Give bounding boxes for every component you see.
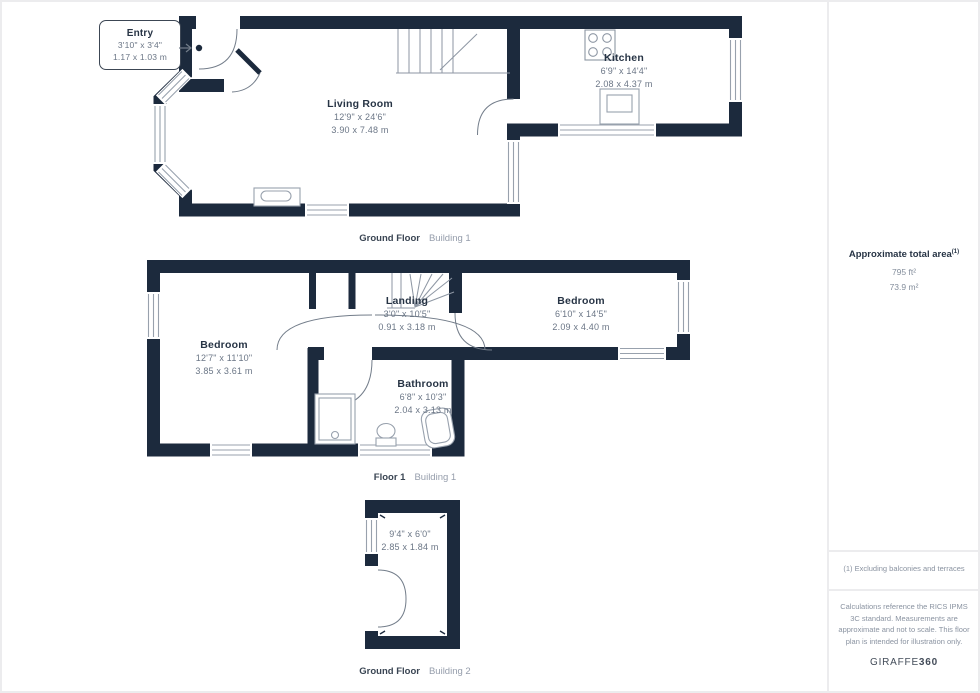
giraffe360-logo: GIRAFFE360 (828, 657, 980, 668)
entry-inner-door-arc (232, 73, 260, 92)
bathtub (420, 407, 456, 450)
total-area-m: 73.9 m² (828, 282, 980, 292)
exterior-walls (372, 507, 454, 643)
entry-door-leaf (237, 50, 260, 73)
shower (315, 394, 355, 444)
room-dims-m: 1.17 x 1.03 m (100, 52, 180, 64)
building1-ground-floor-plan (155, 23, 741, 216)
caption-building: Building 1 (429, 233, 471, 244)
caption-ground-floor-building2: Ground Floor Building 2 (2, 666, 828, 677)
toilet (376, 424, 396, 447)
room-dims-ft: 3'10" x 3'4" (100, 40, 180, 52)
total-area-ft: 795 ft² (828, 267, 980, 277)
caption-floor: Ground Floor (359, 233, 420, 244)
brand-name: GIRAFFE (870, 657, 919, 668)
windows (149, 280, 689, 455)
kitchen-counter (600, 89, 639, 124)
disclaimer-text: Calculations reference the RICS IPMS 3C … (837, 601, 971, 647)
entry-callout: Entry 3'10" x 3'4" 1.17 x 1.03 m (99, 20, 181, 70)
stove-icon (585, 30, 615, 60)
exterior-walls (160, 23, 736, 211)
stairs-icon (387, 273, 454, 308)
total-area-title: Approximate total area(1) (828, 249, 980, 260)
total-area-label: Approximate total area (849, 249, 952, 260)
area-footnote: (1) Excluding balconies and terraces (828, 564, 980, 573)
brand-suffix: 360 (919, 657, 938, 668)
caption-building: Building 2 (429, 666, 471, 677)
hall-door-arc-left (277, 315, 372, 350)
corner-ticks (380, 515, 445, 634)
floorplan-page: Entry 3'10" x 3'4" 1.17 x 1.03 m Living … (0, 0, 980, 693)
panel-divider-bottom (828, 589, 980, 591)
floorplan-drawing (2, 2, 828, 693)
caption-building: Building 1 (414, 472, 456, 483)
windows (155, 38, 741, 215)
double-door-arcs (378, 570, 406, 627)
stairs-icon (396, 29, 510, 73)
side-panel: Approximate total area(1) 795 ft² 73.9 m… (828, 2, 980, 693)
caption-floor: Floor 1 (374, 472, 406, 483)
building1-floor1-plan (149, 267, 689, 457)
building2-ground-floor-plan (367, 507, 454, 643)
total-area-footnote-marker: (1) (952, 249, 959, 255)
entry-door-arc (199, 29, 237, 69)
caption-floor: Ground Floor (359, 666, 420, 677)
windows (367, 518, 377, 554)
callout-arrow-icon (179, 40, 197, 56)
caption-floor1-building1: Floor 1 Building 1 (2, 472, 828, 483)
panel-divider-top (828, 550, 980, 552)
room-name: Entry (100, 27, 180, 40)
fireplace (254, 188, 300, 206)
caption-ground-floor-building1: Ground Floor Building 1 (2, 233, 828, 244)
